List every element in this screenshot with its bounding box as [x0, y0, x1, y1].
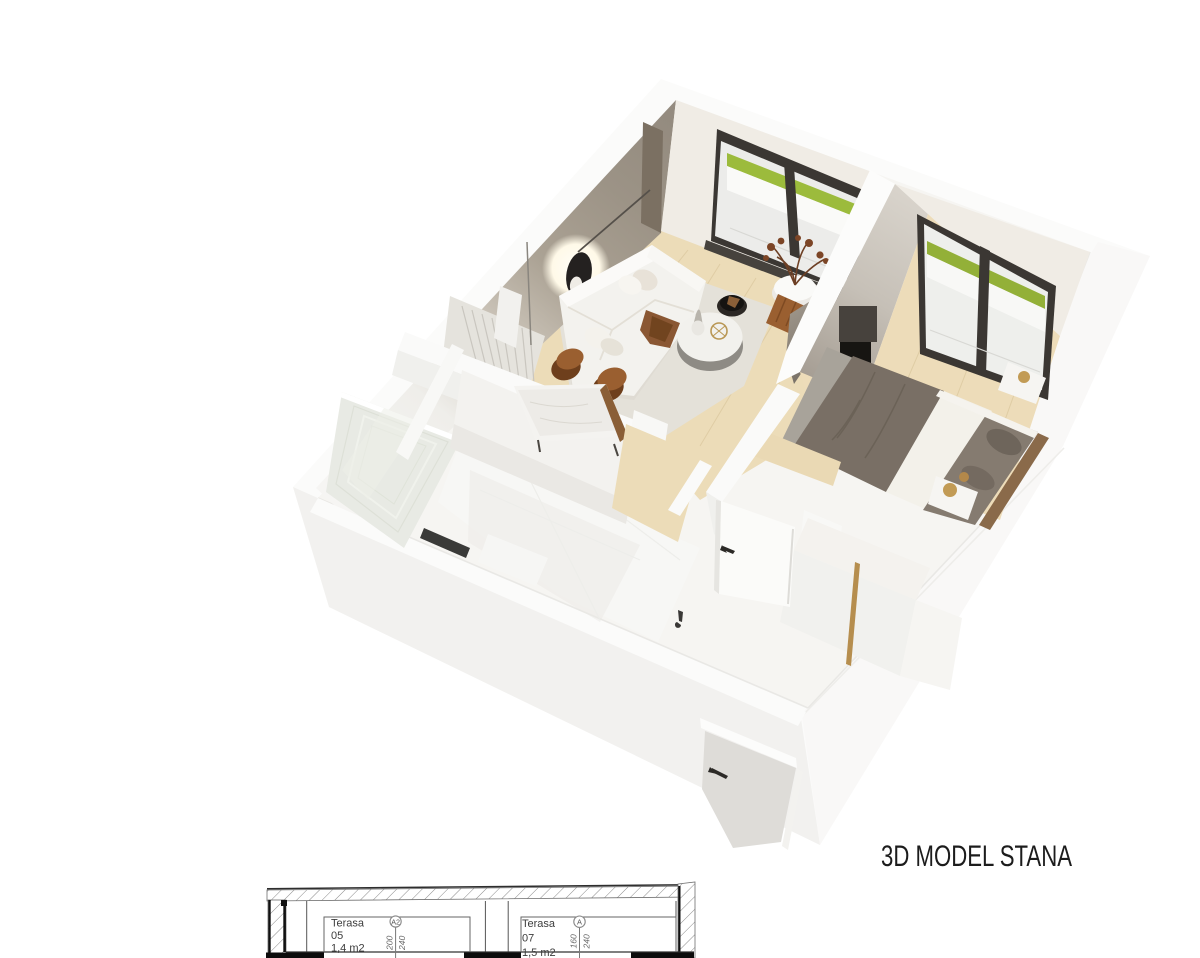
svg-text:160: 160 [569, 934, 579, 949]
svg-text:Terasa: Terasa [522, 918, 556, 930]
svg-text:240: 240 [397, 935, 407, 951]
svg-text:A: A [577, 918, 582, 927]
svg-text:200: 200 [385, 935, 395, 951]
svg-text:240: 240 [582, 934, 592, 950]
svg-text:1,5 m2: 1,5 m2 [522, 947, 556, 958]
svg-text:05: 05 [331, 930, 343, 942]
svg-text:3D MODEL STANA: 3D MODEL STANA [881, 840, 1072, 873]
svg-text:Terasa: Terasa [331, 918, 365, 930]
svg-text:07: 07 [522, 933, 534, 945]
svg-text:1,4 m2: 1,4 m2 [331, 943, 365, 955]
svg-text:A2: A2 [391, 917, 400, 926]
